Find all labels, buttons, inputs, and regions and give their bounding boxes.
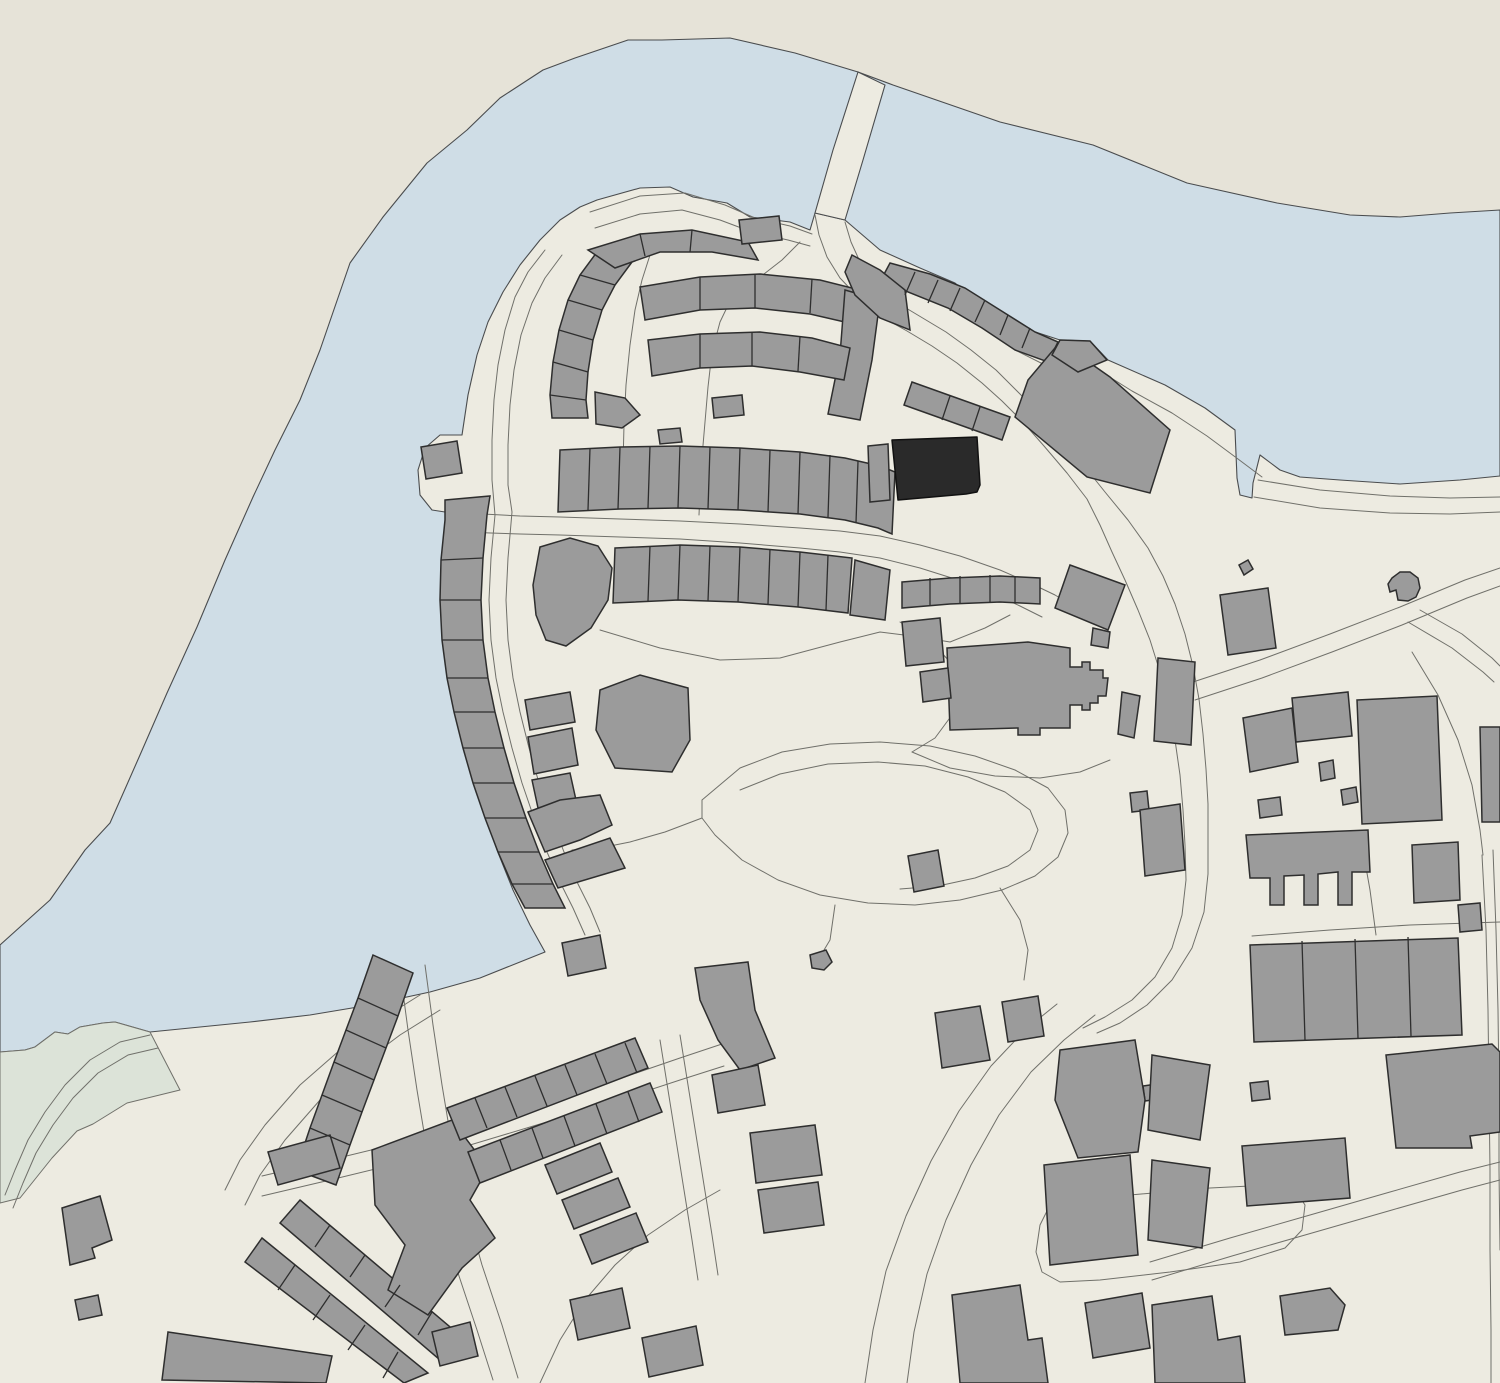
building-se-pair-b: [1148, 1160, 1210, 1248]
building-square-round-house: [1091, 628, 1110, 648]
building-church-east-house: [1154, 658, 1195, 745]
building-se-big-rect: [1044, 1155, 1138, 1265]
building-church-west-2: [920, 668, 951, 702]
site-plan-map: [0, 0, 1500, 1383]
site-plan-svg: [0, 0, 1500, 1383]
highlighted-site-building: [892, 437, 980, 500]
building-church-west-1: [902, 618, 944, 666]
building-courtyard-small-2: [658, 428, 682, 444]
building-promontory-house: [421, 441, 462, 479]
building-se-pair-a: [1148, 1055, 1210, 1140]
building-east-6: [1341, 787, 1358, 805]
building-church-north-row: [902, 576, 1040, 608]
building-highstreet-row-s-end: [850, 560, 890, 620]
building-se-bottom-2: [1280, 1288, 1345, 1335]
building-south-row-1: [750, 1125, 822, 1183]
building-se-slab: [1242, 1138, 1350, 1206]
building-east-edge-house: [1480, 727, 1500, 822]
building-mound-house: [908, 850, 944, 892]
building-mid-west-2: [528, 728, 578, 774]
building-east-2: [1243, 708, 1298, 772]
building-east-hill-house: [1140, 804, 1185, 876]
building-east-5: [1319, 760, 1335, 781]
building-south-row-2: [758, 1182, 824, 1233]
building-shore-end-house: [562, 935, 606, 976]
building-east-small-sq: [1458, 903, 1482, 932]
building-se-corner-big: [1386, 1044, 1500, 1148]
building-courtyard-small-1: [712, 395, 744, 418]
building-se-bottom-3: [1085, 1293, 1150, 1358]
building-farbank-house: [739, 216, 782, 244]
building-east-7: [1258, 797, 1282, 818]
building-s-house-2: [1002, 996, 1044, 1042]
building-neighbor-of-site: [868, 444, 890, 502]
highlight-layer: [892, 437, 980, 500]
building-big-detached: [596, 675, 690, 772]
building-far-sw-house-2: [75, 1295, 102, 1320]
building-s-house-1: [935, 1006, 990, 1068]
building-east-4: [1357, 696, 1442, 824]
building-se-small-sq: [1250, 1081, 1270, 1101]
building-east-1: [1220, 588, 1276, 655]
building-east-3: [1292, 692, 1352, 742]
building-h-building: [1412, 842, 1460, 903]
